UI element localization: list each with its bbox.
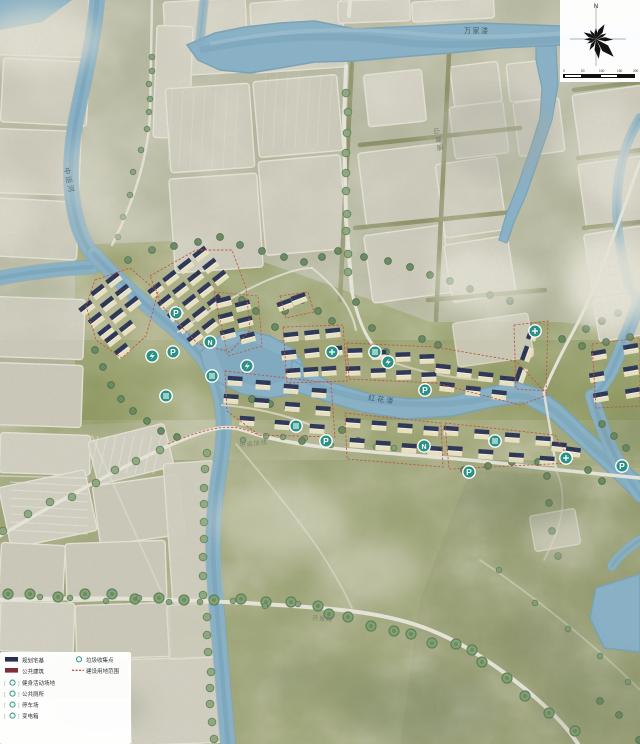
svg-text:健身活动场地: 健身活动场地 (22, 679, 56, 687)
svg-text:P: P (173, 308, 179, 318)
svg-text:P: P (170, 347, 176, 357)
svg-text:100: 100 (599, 69, 605, 73)
svg-text:万家溇: 万家溇 (464, 26, 490, 35)
svg-text:N: N (594, 4, 598, 10)
svg-text:停车场: 停车场 (22, 701, 39, 709)
svg-text:规划宅基: 规划宅基 (22, 657, 45, 665)
svg-text:N: N (207, 340, 212, 347)
svg-text:N: N (421, 444, 426, 451)
svg-text:公共建筑: 公共建筑 (22, 668, 45, 676)
svg-text:P: P (466, 467, 472, 477)
svg-text:公共厕所: 公共厕所 (22, 690, 45, 698)
svg-text:变电箱: 变电箱 (22, 712, 39, 720)
svg-text:建设用地范围: 建设用地范围 (86, 667, 120, 675)
svg-text:P: P (619, 461, 625, 471)
svg-text:200: 200 (633, 69, 639, 73)
svg-text:P: P (422, 385, 428, 395)
svg-text:0: 0 (563, 69, 565, 73)
svg-text:垃圾收集点: 垃圾收集点 (86, 656, 114, 664)
svg-text:150: 150 (617, 69, 623, 73)
svg-text:50: 50 (581, 69, 585, 73)
svg-text:P: P (323, 436, 329, 446)
